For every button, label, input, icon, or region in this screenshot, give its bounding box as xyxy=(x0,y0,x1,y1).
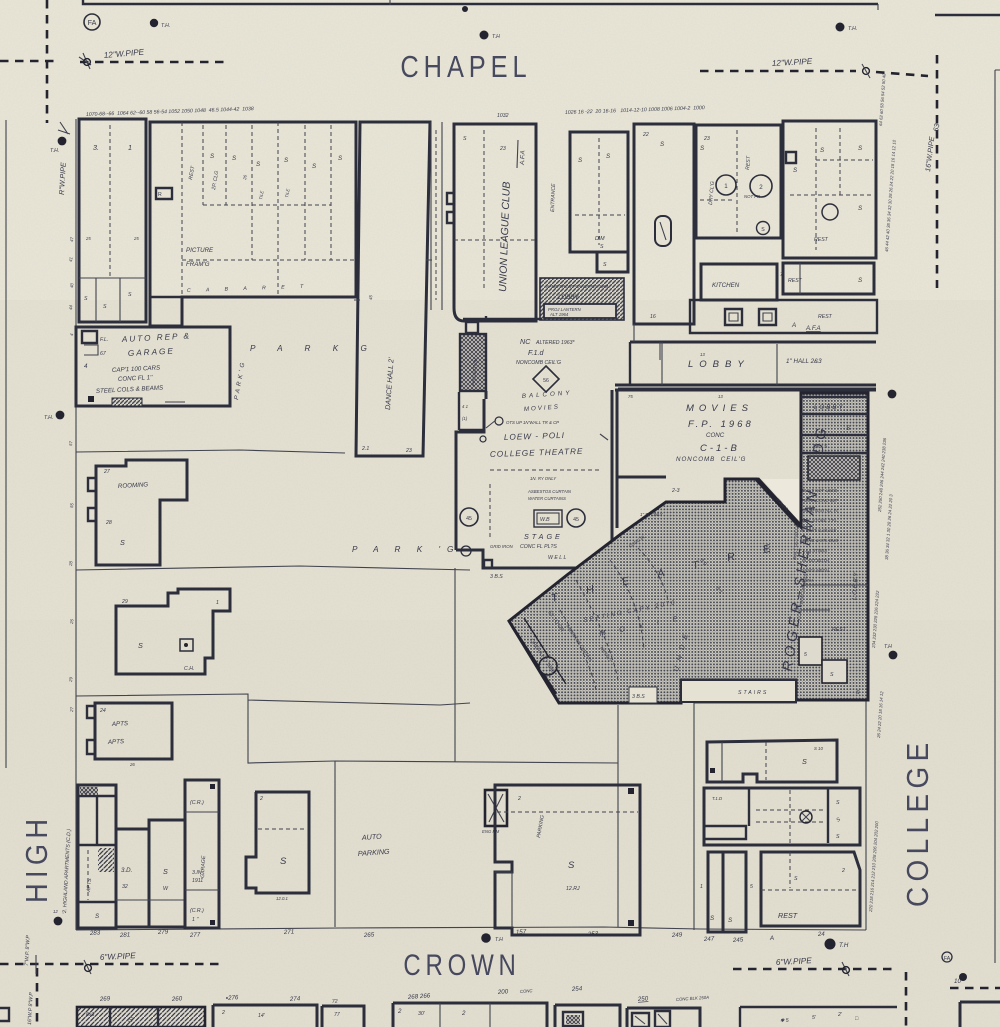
svg-text:COLLEGE: COLLEGE xyxy=(901,737,936,907)
svg-text:LATH: LATH xyxy=(802,578,814,583)
svg-text:3.IN: 3.IN xyxy=(192,870,202,876)
svg-text:F.1.d: F.1.d xyxy=(528,348,544,357)
svg-text:1N. RY ONLY: 1N. RY ONLY xyxy=(530,476,557,481)
svg-text:REST: REST xyxy=(778,911,798,920)
svg-text:12.0.1: 12.0.1 xyxy=(276,896,289,901)
svg-text:S: S xyxy=(463,136,467,142)
svg-text:249: 249 xyxy=(671,931,683,939)
svg-text:1'' HALL 2&3: 1'' HALL 2&3 xyxy=(786,358,822,365)
svg-text:1 '': 1 '' xyxy=(192,917,199,923)
svg-text:27: 27 xyxy=(103,469,111,475)
svg-text:250: 250 xyxy=(637,995,649,1003)
svg-text:2: 2 xyxy=(397,1008,402,1015)
svg-text:A: A xyxy=(769,935,774,942)
svg-text:ALT 1964: ALT 1964 xyxy=(549,312,569,317)
svg-text:12.RJ: 12.RJ xyxy=(566,886,580,892)
svg-text:25: 25 xyxy=(85,236,91,241)
svg-text:28: 28 xyxy=(68,560,74,567)
svg-text:AUTO: AUTO xyxy=(361,832,383,842)
svg-text:REST: REST xyxy=(832,627,847,633)
svg-text:WATER CURTAINS: WATER CURTAINS xyxy=(528,496,566,501)
svg-text:26: 26 xyxy=(69,618,75,625)
svg-text:NOT FNSH ALL FL: NOT FNSH ALL FL xyxy=(802,508,839,513)
svg-text:ENG RM: ENG RM xyxy=(482,829,500,834)
svg-text:T.H.: T.H. xyxy=(44,415,53,421)
svg-text:LOBBY: LOBBY xyxy=(814,404,845,411)
svg-text:1: 1 xyxy=(216,600,219,606)
svg-text:3.D.: 3.D. xyxy=(121,867,132,874)
svg-text:7'4 x 5: 7'4 x 5 xyxy=(812,444,827,450)
svg-text:5: 5 xyxy=(804,652,807,658)
svg-text:S: S xyxy=(603,262,607,268)
svg-text:1: 1 xyxy=(700,884,703,890)
svg-text:13: 13 xyxy=(700,352,705,357)
svg-text:25: 25 xyxy=(133,236,139,241)
svg-text:P A R K G: P A R K G xyxy=(250,344,377,353)
svg-text:6x3: 6x3 xyxy=(86,1012,94,1018)
svg-text:S: S xyxy=(128,292,132,298)
svg-text:279: 279 xyxy=(157,928,169,936)
svg-text:274: 274 xyxy=(289,995,301,1003)
svg-text:5: 5 xyxy=(750,884,753,890)
svg-text:NONCOMB CEIL'G: NONCOMB CEIL'G xyxy=(676,456,747,463)
svg-text:ASBESTOS CURTAIN: ASBESTOS CURTAIN xyxy=(527,489,572,494)
svg-text:247: 247 xyxy=(703,935,715,943)
svg-text:S: S xyxy=(280,856,287,867)
svg-text:32: 32 xyxy=(122,884,128,890)
svg-text:1'' FL ONLY: 1'' FL ONLY xyxy=(640,512,664,517)
svg-text:45: 45 xyxy=(573,517,579,523)
svg-text:REST: REST xyxy=(814,237,829,243)
svg-text:23: 23 xyxy=(703,136,710,142)
svg-text:63: 63 xyxy=(931,123,941,132)
svg-text:S: S xyxy=(794,876,798,882)
svg-text:29: 29 xyxy=(68,676,74,683)
svg-text:S: S xyxy=(568,860,575,871)
svg-text:A.F.A: A.F.A xyxy=(519,150,527,166)
svg-text:3 B.S: 3 B.S xyxy=(632,694,645,700)
svg-text:S: S xyxy=(103,304,107,310)
svg-text:OTS UP 1N'WALL TR & CP: OTS UP 1N'WALL TR & CP xyxy=(506,420,559,425)
svg-text:45: 45 xyxy=(466,516,472,522)
svg-text:28: 28 xyxy=(105,520,112,526)
svg-text:CONC: CONC xyxy=(706,432,725,439)
svg-text:3 B.S: 3 B.S xyxy=(490,574,503,580)
svg-text:APTS: APTS xyxy=(111,720,129,728)
svg-text:W.B: W.B xyxy=(540,517,550,523)
svg-text:R"W.PIPE: R"W.PIPE xyxy=(57,162,68,195)
svg-text:F.P. 1968: F.P. 1968 xyxy=(688,419,754,430)
svg-text:PLAST BOTH: PLAST BOTH xyxy=(802,558,830,563)
svg-text:2: 2 xyxy=(517,796,521,802)
svg-text:14': 14' xyxy=(258,1013,266,1019)
svg-text:1: 1 xyxy=(724,183,728,190)
svg-text:C-1-B: C-1-B xyxy=(700,443,740,454)
svg-text:CONC: CONC xyxy=(520,988,534,994)
svg-text:12: 12 xyxy=(53,909,58,914)
svg-text:STAIRS: STAIRS xyxy=(738,690,768,696)
svg-text:S: S xyxy=(830,672,834,678)
svg-text:4: 4 xyxy=(84,363,88,370)
svg-text:29: 29 xyxy=(121,599,128,605)
svg-text:DIM: DIM xyxy=(595,236,605,242)
svg-text:23: 23 xyxy=(405,448,412,454)
svg-text:1911: 1911 xyxy=(192,878,203,884)
svg-text:SIDES METAL: SIDES METAL xyxy=(802,568,831,573)
svg-text:P A R K 'G: P A R K 'G xyxy=(352,545,460,554)
svg-text:APTS: APTS xyxy=(107,738,125,746)
svg-text:S: S xyxy=(836,800,840,806)
svg-text:T.H.: T.H. xyxy=(50,148,59,154)
svg-text:2 x 4 STUDS: 2 x 4 STUDS xyxy=(801,548,827,553)
svg-text:T.H: T.H xyxy=(839,942,849,949)
svg-text:1: 1 xyxy=(128,143,132,152)
svg-text:2.1: 2.1 xyxy=(361,446,369,452)
svg-text:S: S xyxy=(761,227,765,233)
svg-text:24: 24 xyxy=(99,708,106,714)
svg-text:16: 16 xyxy=(650,314,656,320)
svg-text:S: S xyxy=(856,690,860,696)
svg-text:CONC FL PL?S: CONC FL PL?S xyxy=(520,544,557,550)
svg-text:281: 281 xyxy=(119,931,131,939)
svg-text:& B'M'T GARAGE: & B'M'T GARAGE xyxy=(802,528,836,533)
svg-text:1032: 1032 xyxy=(497,113,509,119)
svg-text:T.H: T.H xyxy=(495,937,503,943)
svg-text:REST: REST xyxy=(788,278,803,284)
svg-text:S: S xyxy=(802,757,807,766)
svg-text:22: 22 xyxy=(642,132,649,138)
svg-text:FRAM'G: FRAM'G xyxy=(186,261,210,268)
svg-text:27: 27 xyxy=(69,706,75,713)
svg-text:56: 56 xyxy=(543,378,549,384)
svg-text:30': 30' xyxy=(418,1011,426,1017)
svg-text:BUILT NOT USED: BUILT NOT USED xyxy=(802,488,837,493)
svg-text:254: 254 xyxy=(571,985,583,993)
svg-text:T.H.: T.H. xyxy=(848,26,857,32)
svg-text:75: 75 xyxy=(628,394,633,399)
svg-text:S: S xyxy=(138,641,143,650)
svg-text:HIGH: HIGH xyxy=(20,814,54,903)
svg-text:F.L.: F.L. xyxy=(100,337,108,343)
svg-text:23: 23 xyxy=(499,146,506,152)
svg-text:FA: FA xyxy=(944,956,951,962)
svg-text:2: 2 xyxy=(221,1010,225,1016)
svg-text:CONC & STL BMS: CONC & STL BMS xyxy=(802,538,838,543)
svg-text:260: 260 xyxy=(171,995,183,1003)
svg-text:CROWN: CROWN xyxy=(403,947,520,981)
svg-text:T.H: T.H xyxy=(884,644,892,650)
svg-text:GRID IRON: GRID IRON xyxy=(490,544,514,549)
svg-text:2: 2 xyxy=(759,184,763,191)
svg-text:SAME FRONT CANOPIES 1964: SAME FRONT CANOPIES 1964 xyxy=(546,284,609,289)
svg-text:S: S xyxy=(84,790,88,796)
svg-text:S: S xyxy=(128,1015,133,1024)
svg-text:✱ 5: ✱ 5 xyxy=(780,1018,789,1024)
svg-text:NC: NC xyxy=(520,337,531,346)
svg-text:LOBBY: LOBBY xyxy=(688,359,750,370)
svg-text:T.1.D: T.1.D xyxy=(712,796,722,801)
svg-text:265: 265 xyxy=(363,931,375,939)
svg-text:KITCHEN: KITCHEN xyxy=(712,282,740,289)
svg-text:S: S xyxy=(84,296,88,302)
svg-text:26: 26 xyxy=(129,762,135,767)
svg-text:T.H: T.H xyxy=(492,34,500,40)
svg-text:S 10: S 10 xyxy=(814,746,823,751)
svg-text:LOBBY: LOBBY xyxy=(558,294,580,301)
svg-text:277: 277 xyxy=(189,931,201,939)
svg-text:ALTERED 1963*: ALTERED 1963* xyxy=(535,340,576,346)
svg-text:▪276: ▪276 xyxy=(226,994,240,1002)
svg-text:2-3: 2-3 xyxy=(671,488,680,494)
svg-text:EXC STORE 1''FL: EXC STORE 1''FL xyxy=(802,518,838,523)
svg-text:S: S xyxy=(600,244,604,250)
svg-text:ENTRANCE: ENTRANCE xyxy=(550,183,557,212)
svg-text:245: 245 xyxy=(732,936,744,944)
svg-text:C.H.: C.H. xyxy=(184,666,194,672)
svg-text:(1): (1) xyxy=(462,416,468,421)
svg-text:2: 2 xyxy=(259,796,263,802)
svg-text:CHAPEL: CHAPEL xyxy=(400,50,531,85)
svg-text:A: A xyxy=(791,322,796,329)
svg-text:MOVIES: MOVIES xyxy=(686,403,753,414)
svg-text:2: 2 xyxy=(841,868,845,874)
svg-text:A.F.A: A.F.A xyxy=(805,325,821,332)
svg-text:6"W.PIPE: 6"W.PIPE xyxy=(100,951,137,962)
svg-text:T.H.: T.H. xyxy=(161,23,170,29)
svg-text:(C.R.): (C.R.) xyxy=(190,800,204,806)
svg-text:NONCOMB CEIL'G: NONCOMB CEIL'G xyxy=(516,360,561,366)
svg-text:S: S xyxy=(120,538,125,547)
svg-text:R: R xyxy=(158,192,162,198)
svg-text:STAGE: STAGE xyxy=(524,532,563,541)
svg-text:REINF CONC BLT: REINF CONC BLT xyxy=(802,498,838,503)
svg-text:200: 200 xyxy=(497,988,509,996)
svg-text:W E L L: W E L L xyxy=(548,555,566,561)
svg-text:283: 283 xyxy=(89,929,101,937)
svg-text:6"W.PIPE: 6"W.PIPE xyxy=(776,956,813,967)
svg-text:PICTURE: PICTURE xyxy=(186,247,214,254)
svg-text:S: S xyxy=(836,834,840,840)
svg-text:S: S xyxy=(163,867,168,876)
svg-text:4 1: 4 1 xyxy=(462,404,469,409)
svg-text:(C.R.): (C.R.) xyxy=(190,908,204,914)
svg-text:REST: REST xyxy=(745,155,752,170)
svg-text:269: 269 xyxy=(99,995,111,1003)
svg-text:NOT FR: NOT FR xyxy=(744,194,760,199)
svg-text:72: 72 xyxy=(332,999,338,1005)
svg-text:3.: 3. xyxy=(93,143,99,152)
svg-text:271: 271 xyxy=(283,928,295,936)
svg-text:24: 24 xyxy=(817,931,826,938)
svg-text:2: 2 xyxy=(461,1010,466,1017)
svg-text:13: 13 xyxy=(718,394,723,399)
svg-text:FA: FA xyxy=(88,18,97,27)
svg-text:REST: REST xyxy=(818,314,833,320)
